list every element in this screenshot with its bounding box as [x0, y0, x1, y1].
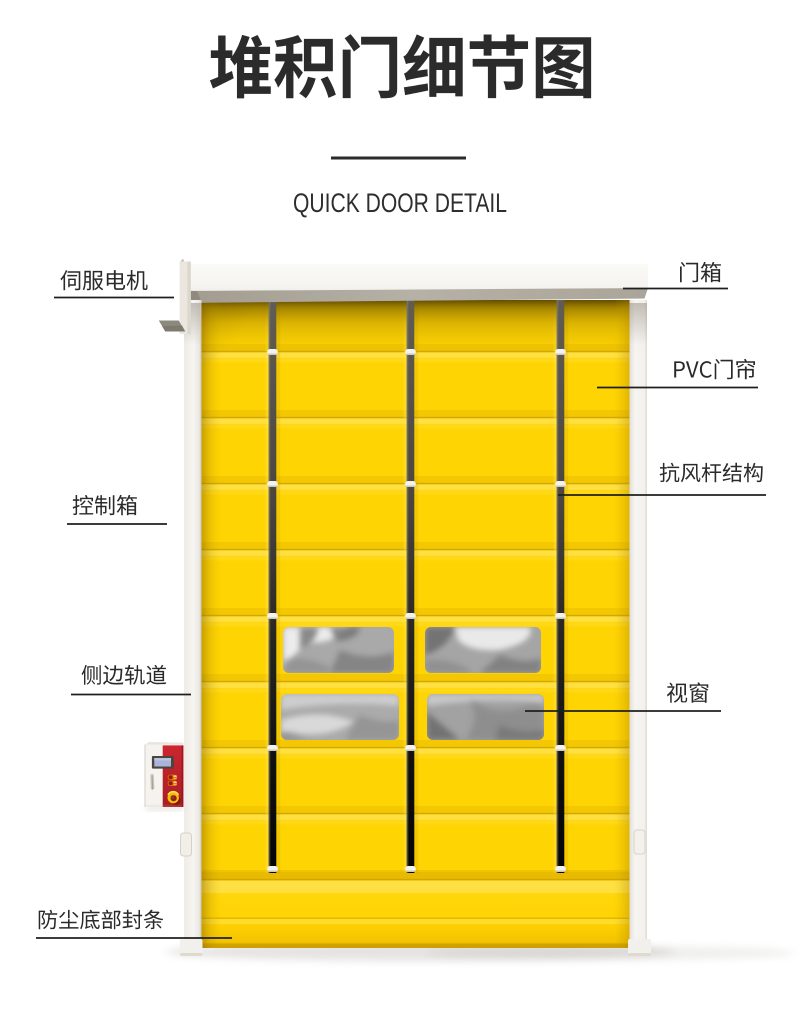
svg-text:QUICK DOOR DETAIL: QUICK DOOR DETAIL: [293, 188, 507, 218]
